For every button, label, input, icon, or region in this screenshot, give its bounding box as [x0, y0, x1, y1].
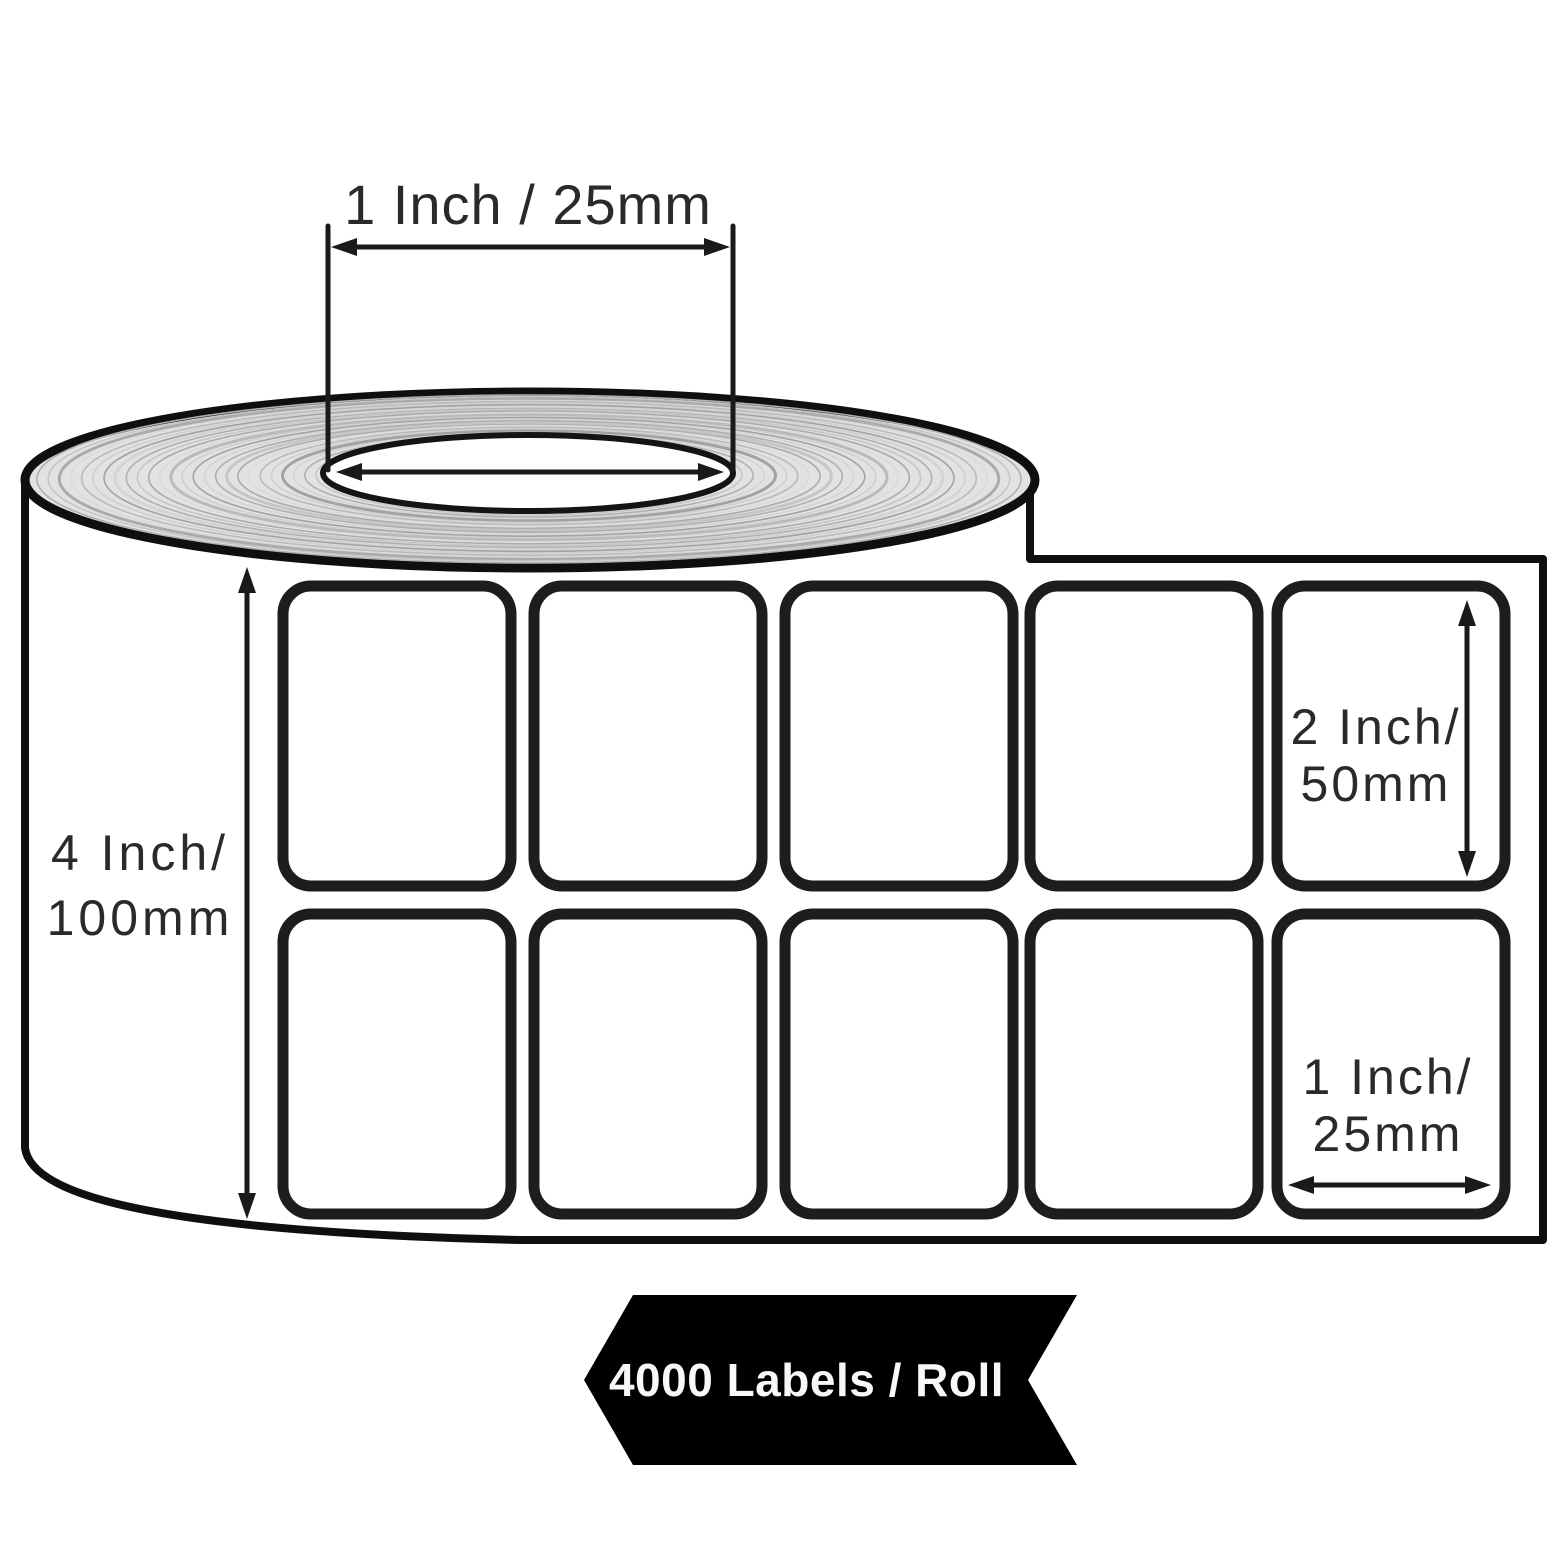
label-cell — [1030, 914, 1258, 1214]
label-cell — [534, 586, 762, 886]
roll-width-label: 4 Inch/ 100mm — [0, 821, 290, 951]
label-height-label: 2 Inch/ 50mm — [1276, 699, 1476, 813]
label-cell — [283, 914, 511, 1214]
label-roll-diagram: 1 Inch / 25mm 4 Inch/ 100mm 2 Inch/ 50mm… — [0, 0, 1563, 1563]
roll-width-label-line1: 4 Inch/ — [0, 821, 290, 886]
arrowhead-left — [331, 238, 357, 256]
roll-width-label-line2: 100mm — [0, 886, 290, 951]
label-cell — [283, 586, 511, 886]
label-cell — [785, 914, 1013, 1214]
label-cell — [1030, 586, 1258, 886]
label-cell — [785, 586, 1013, 886]
label-width-label-line2: 25mm — [1288, 1106, 1488, 1163]
arrowhead-right — [704, 238, 730, 256]
label-height-label-line2: 50mm — [1276, 756, 1476, 813]
label-cell — [534, 914, 762, 1214]
label-width-label-line1: 1 Inch/ — [1288, 1049, 1488, 1106]
core-dimension-label: 1 Inch / 25mm — [278, 176, 778, 234]
banner-text: 4000 Labels / Roll — [609, 1353, 1004, 1407]
labels-per-roll-banner: 4000 Labels / Roll — [584, 1295, 1077, 1465]
label-height-label-line1: 2 Inch/ — [1276, 699, 1476, 756]
label-width-label: 1 Inch/ 25mm — [1288, 1049, 1488, 1163]
roll-top — [25, 392, 1035, 568]
